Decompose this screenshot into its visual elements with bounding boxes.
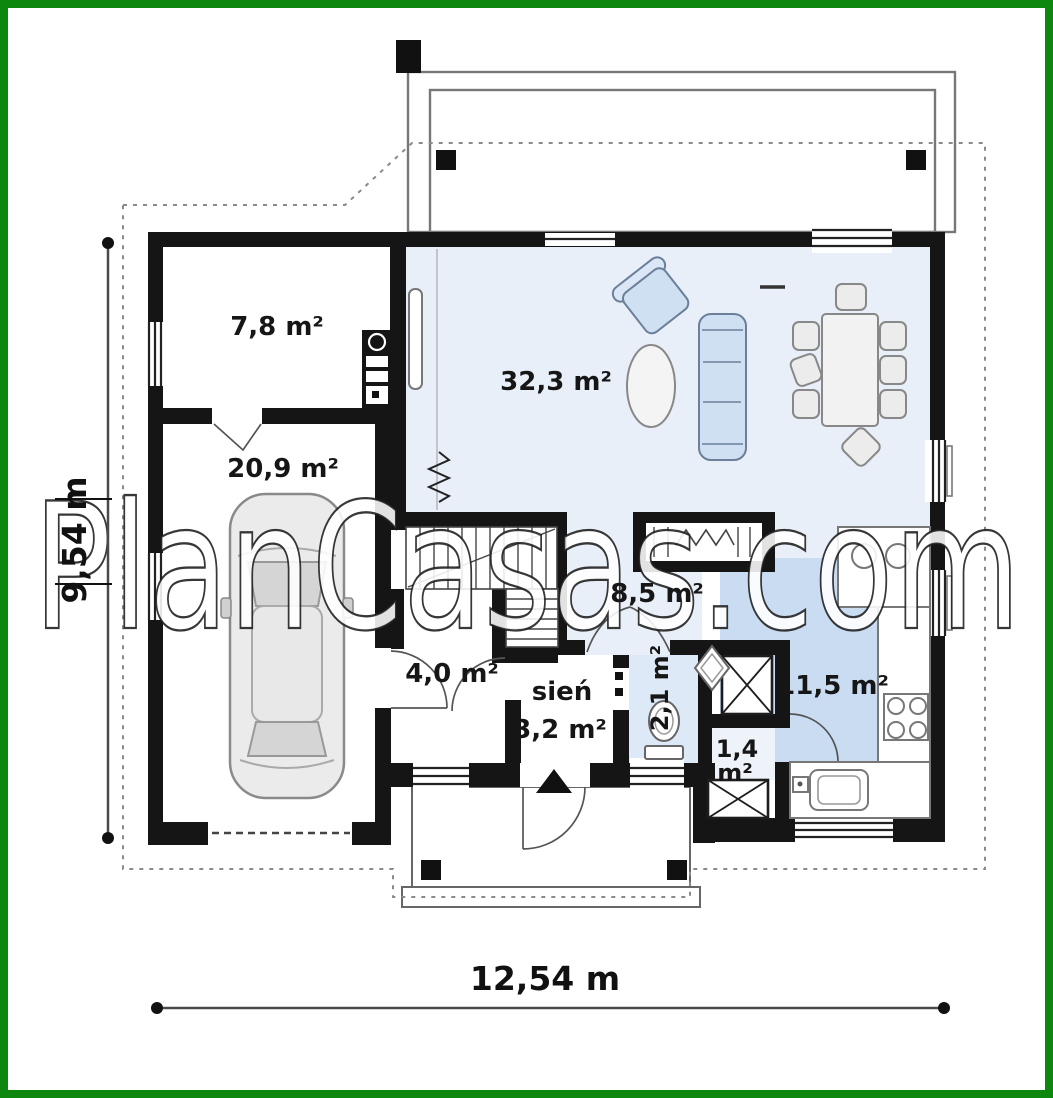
wall-radiator-icon [409, 289, 422, 389]
chair-icon [880, 356, 906, 384]
chimney [396, 40, 421, 73]
opening-terrace-door [545, 233, 615, 246]
dining-table-icon [822, 314, 878, 426]
terrace-column-right [906, 150, 926, 170]
pantry-area-unit: m² [717, 759, 753, 787]
chair-icon [880, 322, 906, 350]
porch-column-left [421, 860, 441, 880]
entry-porch [402, 787, 700, 907]
wall-kitchen-left-lower [775, 762, 790, 818]
porch-column-right [667, 860, 687, 880]
wall-utility-bottom-left [148, 408, 212, 424]
width-dimension-label: 12,54 m [470, 959, 620, 998]
window-top-living [812, 226, 892, 253]
chair-icon [880, 390, 906, 418]
chair-icon [793, 322, 819, 350]
boiler-vent-icon [366, 371, 388, 382]
porch-slab [412, 787, 690, 887]
wall-garage-foot-left [148, 822, 208, 845]
wc-door-opening [613, 668, 629, 710]
hall-area-label: 8,5 m² [610, 579, 704, 609]
floor-plan-drawing: PlanCasas.com 7,8 m² 20,9 m² 32,3 m² 8,5… [0, 0, 1053, 1098]
vestibule-area-label: 3,2 m² [513, 715, 607, 745]
stove-icon [884, 694, 928, 740]
sofa-icon [699, 314, 746, 460]
height-dimension-label: 9,54 m [55, 476, 94, 603]
window-left-utility [143, 322, 168, 386]
kitchen-area-label: 11,5 m² [777, 671, 889, 701]
watermark-text: PlanCasas.com [33, 467, 1021, 670]
wall-garage-right-lower [375, 708, 391, 845]
boiler-dot [372, 391, 379, 398]
porch-step [402, 887, 700, 907]
vestibule-name-label: sień [532, 677, 593, 707]
garage-area-label: 20,9 m² [227, 454, 339, 484]
wc-area-label: 2,1 m² [646, 645, 674, 731]
chair-icon [836, 284, 866, 310]
living-area-label: 32,3 m² [500, 367, 612, 397]
chair-icon [793, 390, 819, 418]
boiler-vent-icon [366, 356, 388, 367]
window-bottom-left [413, 758, 469, 790]
window-bottom-right [630, 758, 684, 790]
terrace-column-left [436, 150, 456, 170]
floor-plan-page: PlanCasas.com 7,8 m² 20,9 m² 32,3 m² 8,5… [0, 0, 1053, 1098]
mudroom-area-label: 4,0 m² [405, 659, 499, 689]
coffee-table-icon [627, 345, 675, 427]
utility-area-label: 7,8 m² [230, 312, 324, 342]
